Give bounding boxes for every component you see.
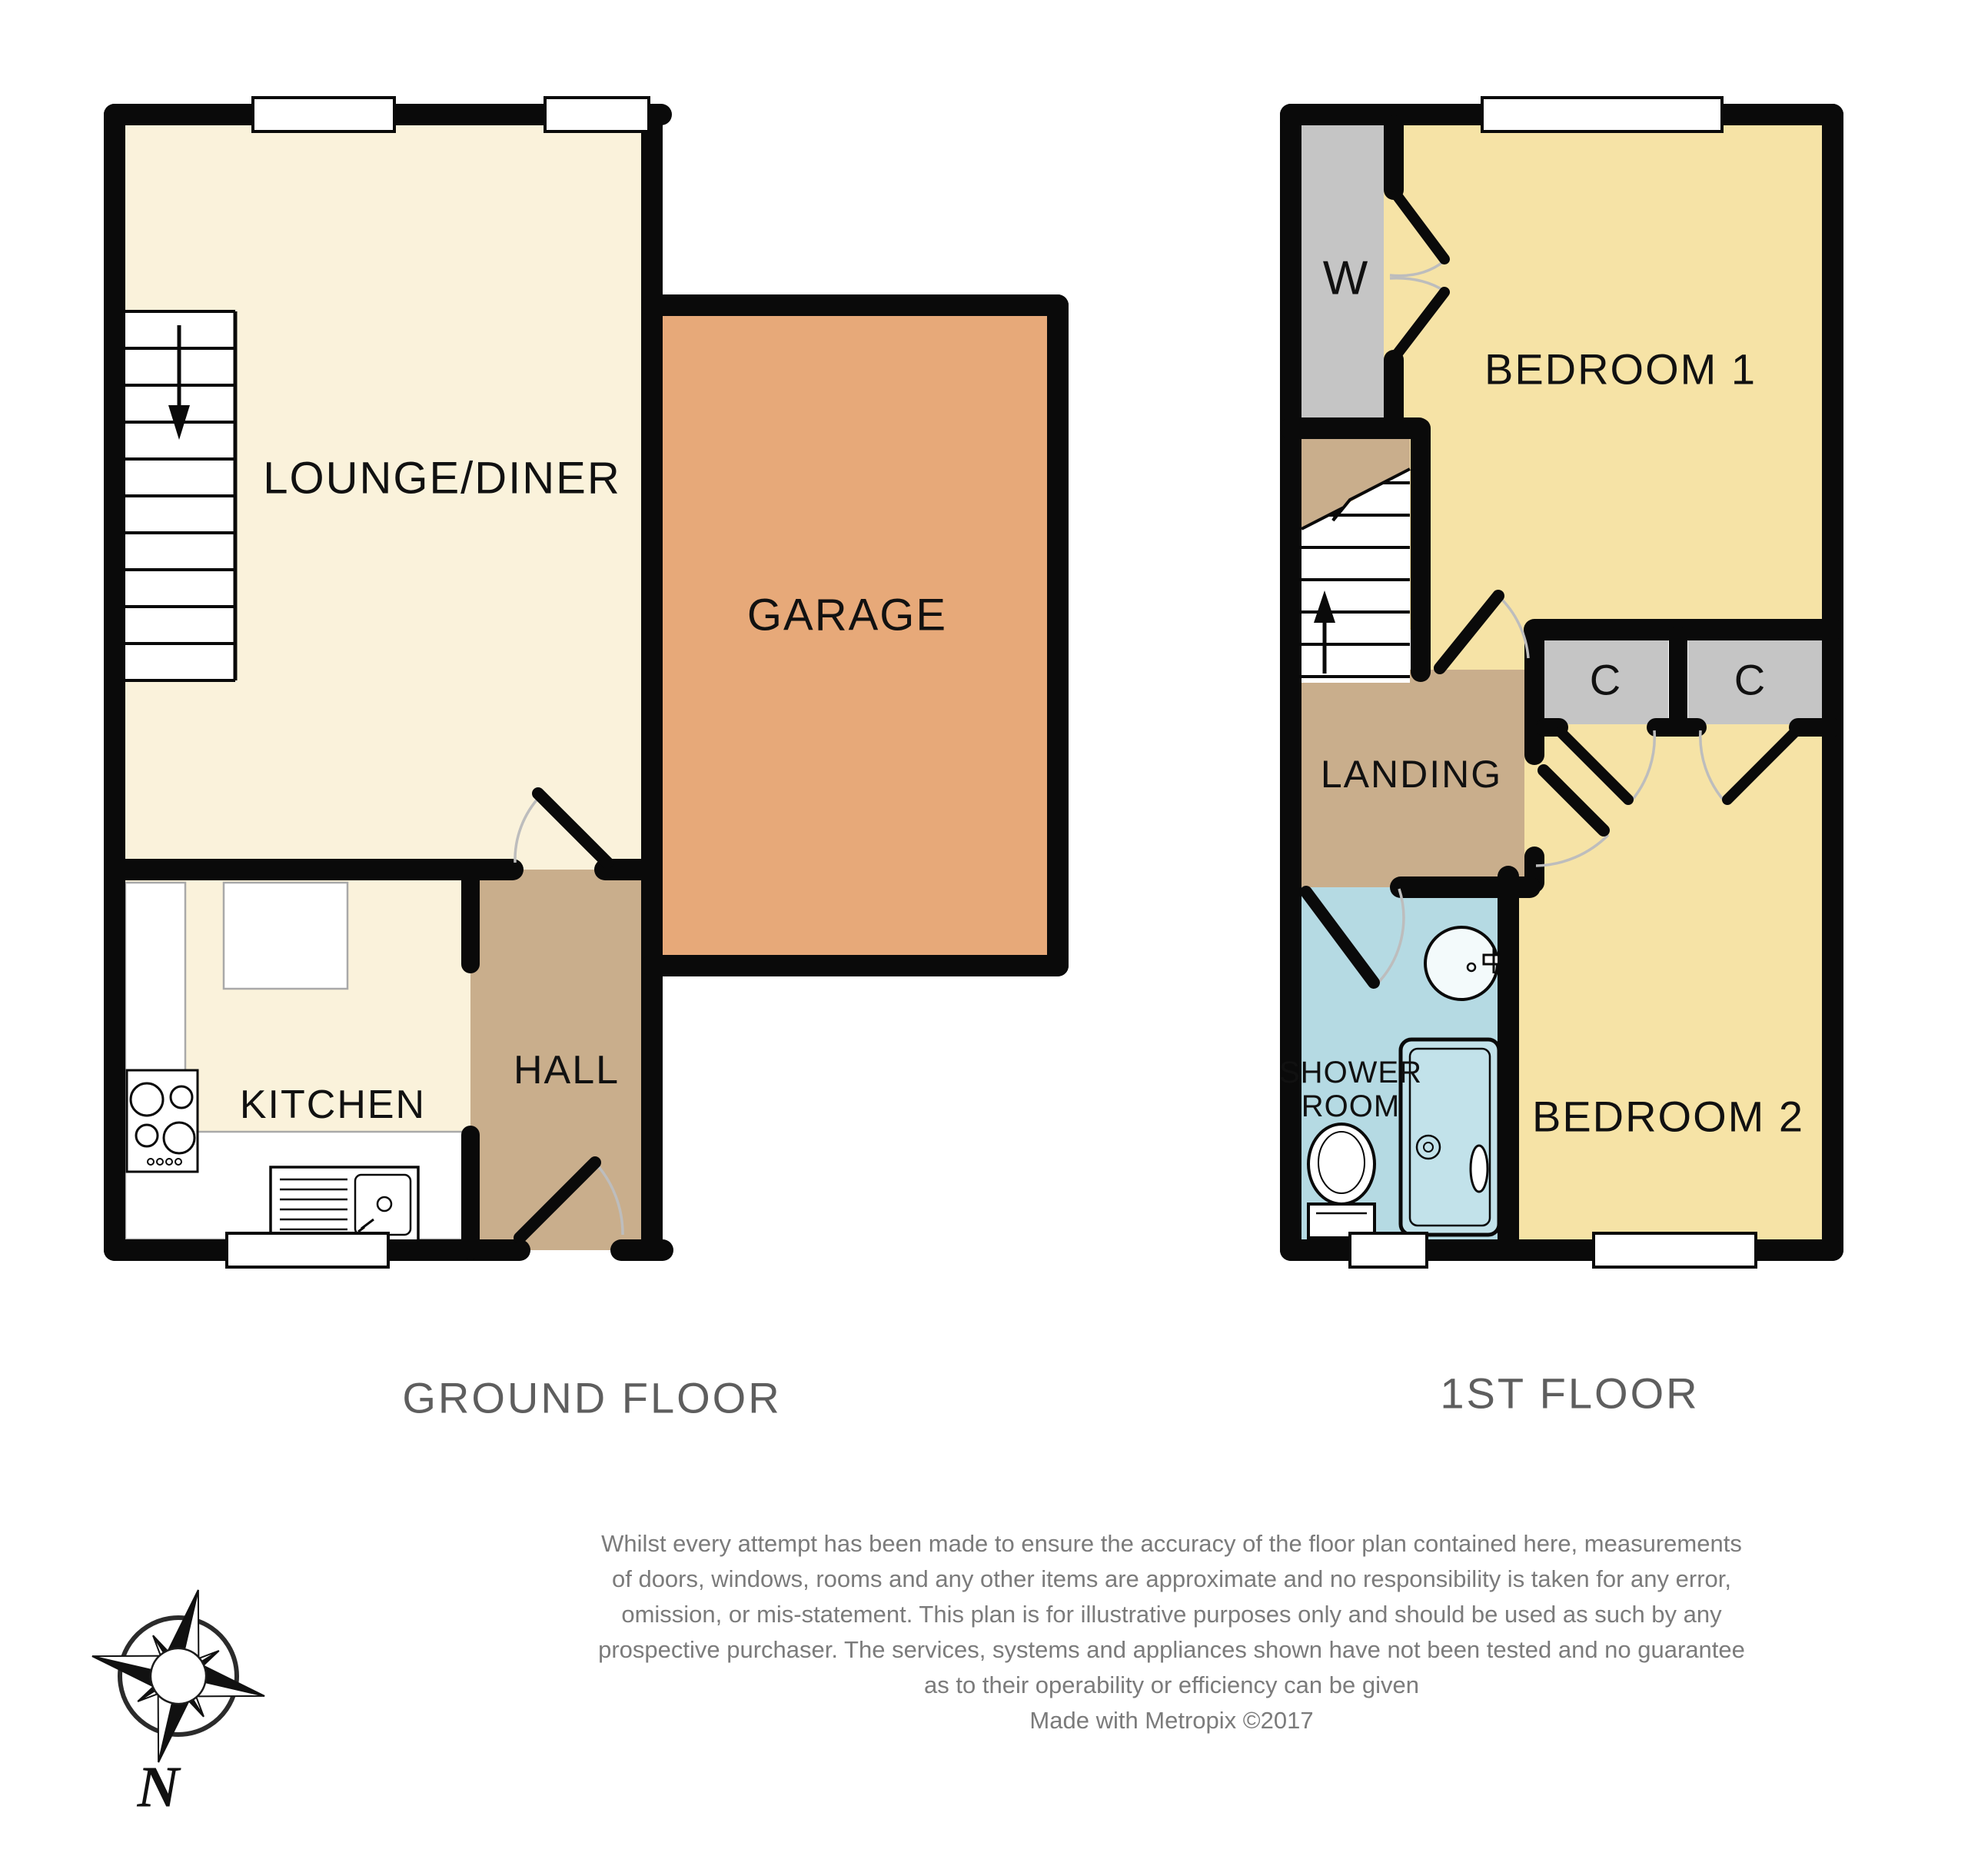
window-icon [1482, 98, 1722, 131]
label-bedroom1: BEDROOM 1 [1484, 344, 1757, 394]
window-icon [227, 1233, 388, 1267]
window-icon [253, 98, 394, 131]
kitchen-sink-icon [271, 1167, 418, 1241]
compass-rose-icon [72, 1570, 284, 1782]
label-cupboard2: C [1734, 655, 1765, 705]
floorplan-page: LOUNGE/DINER GARAGE KITCHEN HALL BEDROOM… [0, 0, 1968, 1876]
label-bedroom2: BEDROOM 2 [1532, 1092, 1804, 1142]
disclaimer-text: Whilst every attempt has been made to en… [598, 1526, 1745, 1738]
title-ground-floor: GROUND FLOOR [402, 1373, 781, 1423]
title-first-floor: 1ST FLOOR [1440, 1369, 1699, 1419]
hob-icon [127, 1070, 198, 1172]
staircase-down-icon [125, 311, 235, 680]
window-icon [1594, 1233, 1756, 1267]
label-landing: LANDING [1321, 752, 1502, 797]
label-shower-room: SHOWER ROOM [1279, 1056, 1422, 1123]
compass-north-label: N [138, 1755, 180, 1821]
label-hall: HALL [514, 1047, 620, 1093]
toilet-icon [1308, 1124, 1375, 1238]
room-bedroom2 [1519, 723, 1822, 1239]
window-icon [1350, 1233, 1427, 1267]
metropix-credit: Made with Metropix ©2017 [598, 1703, 1745, 1738]
label-kitchen: KITCHEN [240, 1082, 426, 1128]
label-lounge-diner: LOUNGE/DINER [263, 453, 621, 504]
label-wardrobe: W [1323, 251, 1368, 306]
label-garage: GARAGE [747, 590, 947, 641]
label-cupboard1: C [1590, 655, 1621, 705]
window-icon [545, 98, 649, 131]
